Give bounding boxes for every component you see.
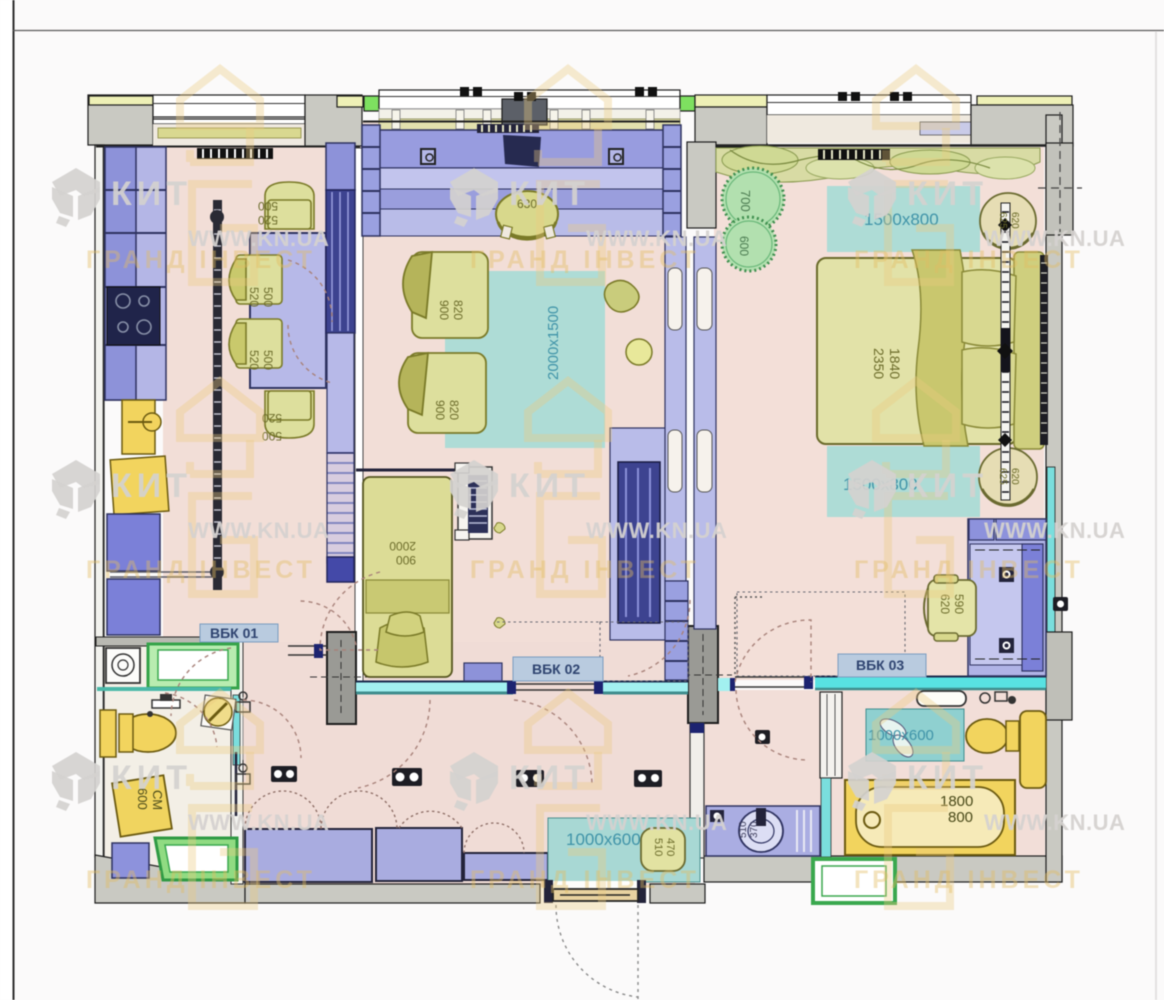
svg-text:ГРАНД ІНВЕСТ: ГРАНД ІНВЕСТ [854,246,1084,274]
svg-text:2350: 2350 [871,348,887,379]
svg-text:470: 470 [664,838,676,856]
svg-text:700: 700 [738,190,753,212]
svg-text:800: 800 [948,809,973,826]
svg-text:620: 620 [1009,468,1020,485]
svg-text:510: 510 [738,821,749,838]
svg-text:820: 820 [447,400,461,420]
svg-text:900: 900 [396,553,416,567]
svg-text:ВБК 02: ВБК 02 [532,661,580,677]
svg-text:900: 900 [437,300,451,320]
svg-text:ГРАНД ІНВЕСТ: ГРАНД ІНВЕСТ [854,866,1084,894]
svg-text:ГРАНД ІНВЕСТ: ГРАНД ІНВЕСТ [86,866,316,894]
svg-text:ГРАНД ІНВЕСТ: ГРАНД ІНВЕСТ [470,556,700,584]
svg-text:520: 520 [247,287,261,307]
svg-text:520: 520 [247,350,261,370]
svg-text:ГРАНД ІНВЕСТ: ГРАНД ІНВЕСТ [854,556,1084,584]
svg-text:625: 625 [997,468,1008,485]
svg-text:ГРАНД ІНВЕСТ: ГРАНД ІНВЕСТ [470,866,700,894]
svg-text:500: 500 [261,350,275,370]
svg-text:900: 900 [433,400,447,420]
svg-text:ВБК 03: ВБК 03 [856,657,904,673]
svg-text:1840: 1840 [887,348,903,379]
svg-text:ГРАНД ІНВЕСТ: ГРАНД ІНВЕСТ [86,246,316,274]
svg-text:820: 820 [451,300,465,320]
svg-text:ГРАНД ІНВЕСТ: ГРАНД ІНВЕСТ [86,556,316,584]
svg-text:520: 520 [258,213,278,227]
svg-text:370: 370 [749,821,760,838]
svg-text:500: 500 [262,429,282,443]
svg-text:510: 510 [652,838,664,856]
svg-text:600: 600 [737,236,751,256]
svg-text:2000: 2000 [389,539,416,553]
svg-text:ВБК 01: ВБК 01 [210,625,258,641]
svg-text:590: 590 [952,594,966,614]
svg-text:520: 520 [262,411,282,425]
svg-text:500: 500 [258,199,278,213]
svg-text:2000x1500: 2000x1500 [545,306,562,380]
svg-text:ГРАНД ІНВЕСТ: ГРАНД ІНВЕСТ [470,246,700,274]
svg-text:500: 500 [261,287,275,307]
